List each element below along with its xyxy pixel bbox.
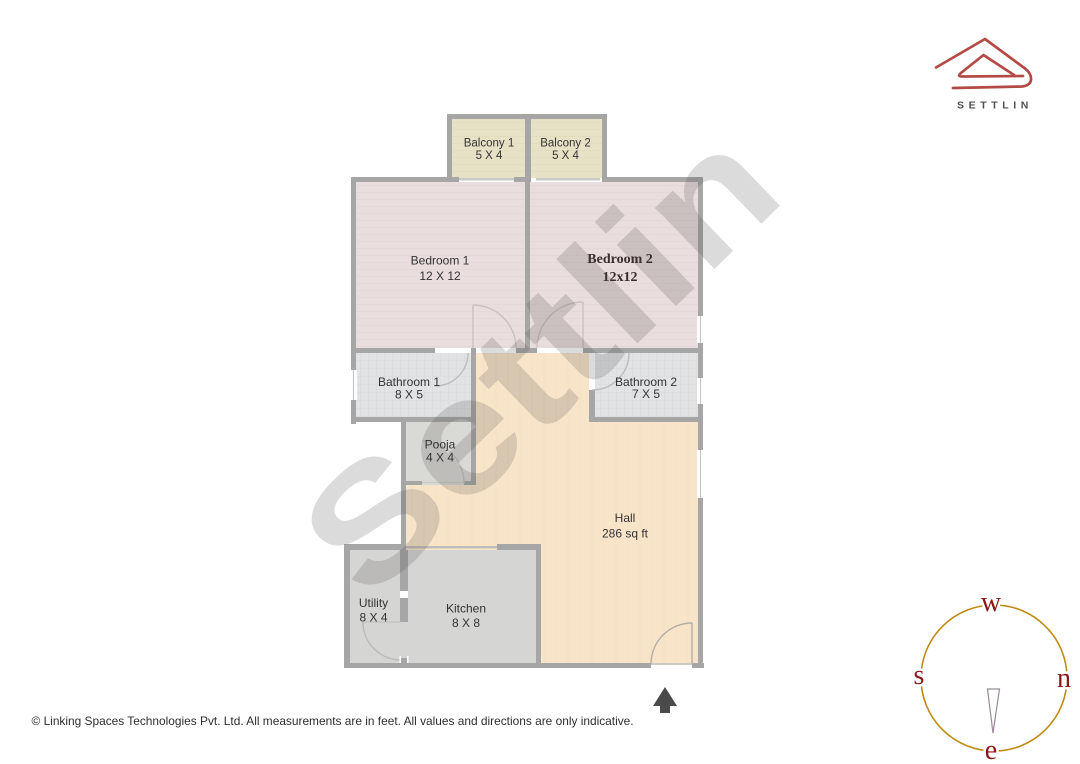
svg-text:Bedroom 1: Bedroom 1 — [411, 254, 470, 268]
svg-text:Hall: Hall — [615, 511, 636, 525]
svg-text:4 X 4: 4 X 4 — [426, 451, 454, 465]
svg-text:Balcony 2: Balcony 2 — [540, 138, 591, 150]
svg-text:SETTLIN: SETTLIN — [957, 100, 1033, 112]
svg-text:Kitchen: Kitchen — [446, 602, 486, 616]
svg-text:© Linking Spaces Technologies: © Linking Spaces Technologies Pvt. Ltd. … — [32, 714, 634, 728]
svg-text:286 sq ft: 286 sq ft — [602, 527, 649, 541]
svg-text:Utility: Utility — [359, 596, 388, 610]
svg-text:5 X 4: 5 X 4 — [552, 150, 579, 162]
svg-text:12x12: 12x12 — [603, 270, 638, 285]
svg-text:n: n — [1057, 663, 1071, 694]
svg-text:8 X 8: 8 X 8 — [452, 616, 480, 630]
svg-text:s: s — [914, 660, 925, 691]
svg-text:7 X 5: 7 X 5 — [632, 387, 660, 401]
svg-text:5 X 4: 5 X 4 — [476, 150, 503, 162]
svg-text:12 X 12: 12 X 12 — [419, 269, 461, 283]
svg-text:Bedroom 2: Bedroom 2 — [587, 252, 652, 267]
svg-text:Balcony 1: Balcony 1 — [464, 138, 515, 150]
svg-text:8 X 4: 8 X 4 — [359, 611, 387, 625]
svg-text:w: w — [981, 587, 1002, 618]
svg-text:e: e — [985, 735, 997, 764]
svg-text:Pooja: Pooja — [425, 438, 456, 452]
svg-text:8 X 5: 8 X 5 — [395, 388, 423, 402]
